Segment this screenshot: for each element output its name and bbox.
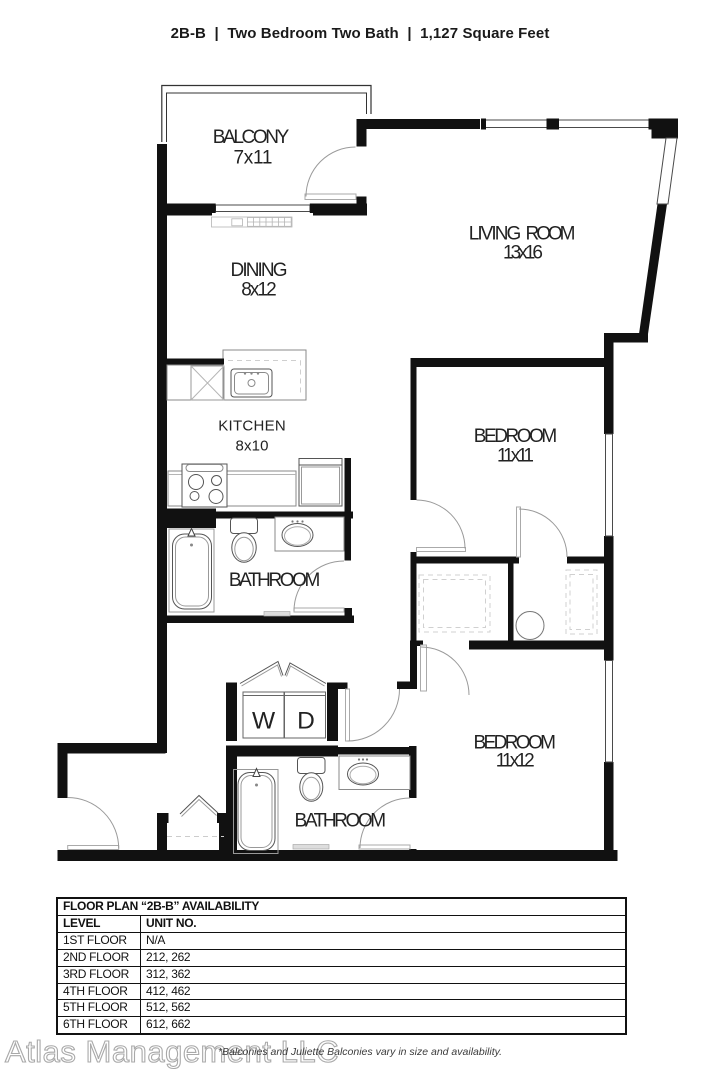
- svg-text:BALCONY: BALCONY: [213, 127, 290, 148]
- svg-text:DINING: DINING: [231, 260, 288, 281]
- svg-text:BATHROOM: BATHROOM: [295, 810, 387, 831]
- svg-text:11x12: 11x12: [496, 750, 535, 771]
- svg-text:11x11: 11x11: [497, 446, 534, 467]
- svg-text:13x16: 13x16: [503, 243, 543, 264]
- svg-text:LIVING: LIVING: [469, 224, 522, 245]
- svg-text:8x10: 8x10: [236, 438, 269, 455]
- svg-text:BEDROOM: BEDROOM: [474, 426, 558, 447]
- svg-text:8x12: 8x12: [241, 280, 277, 301]
- svg-text:D: D: [297, 708, 315, 735]
- svg-text:W: W: [252, 708, 276, 735]
- svg-text:BATHROOM: BATHROOM: [229, 570, 321, 591]
- svg-text:7x11: 7x11: [234, 148, 273, 169]
- svg-text:KITCHEN: KITCHEN: [218, 418, 286, 435]
- svg-text:ROOM: ROOM: [526, 224, 576, 245]
